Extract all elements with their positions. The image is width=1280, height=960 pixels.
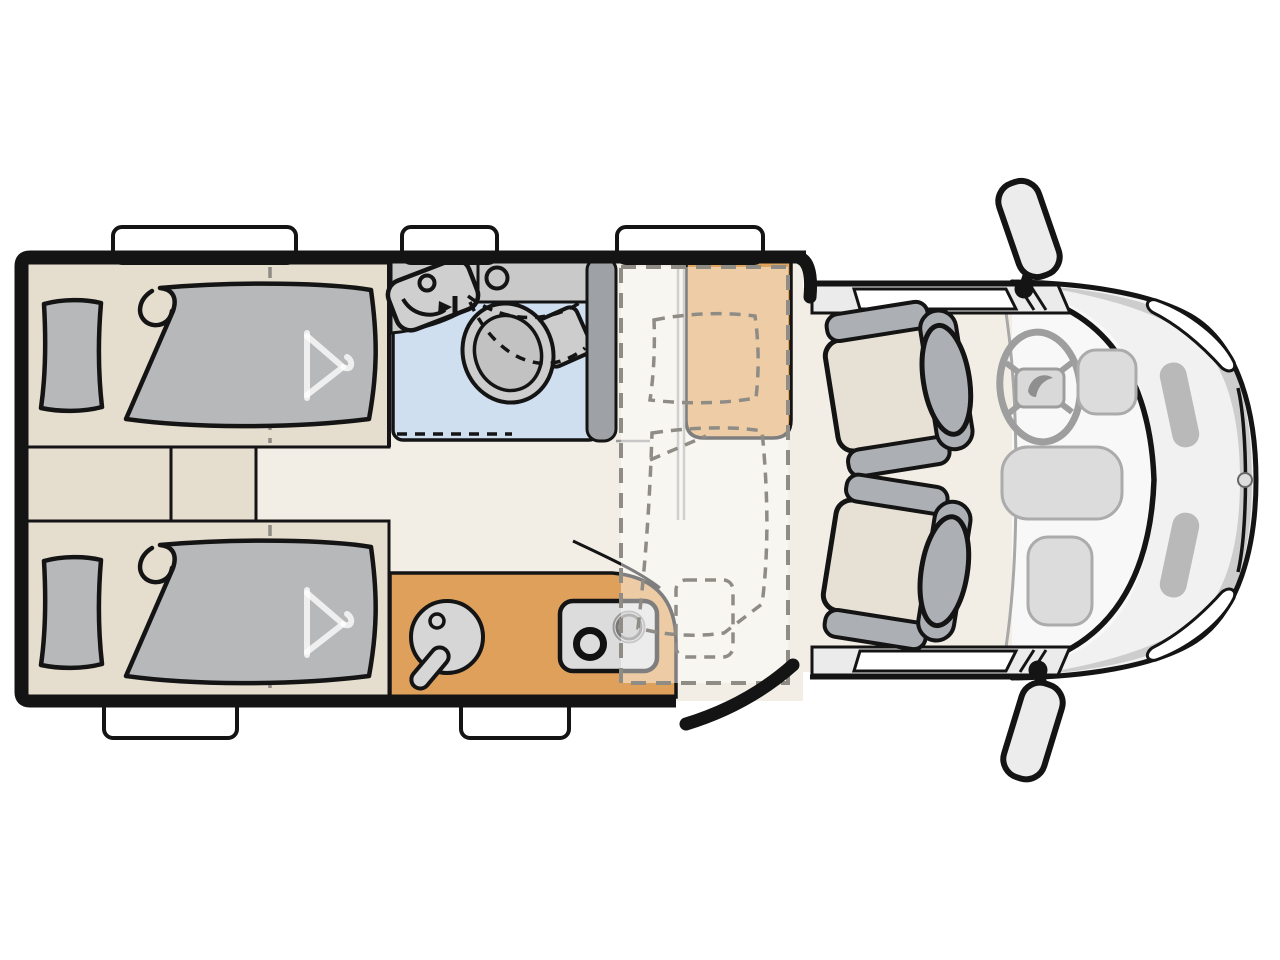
brand-emblem: [1238, 473, 1252, 487]
burner-left: [577, 631, 604, 658]
floorplan-svg: [0, 0, 1280, 960]
camper-floorplan-canvas: [0, 0, 1280, 960]
dashboard-cowl: [1078, 350, 1136, 414]
lower-console: [1028, 537, 1092, 625]
cab-side-window: [854, 651, 1016, 671]
center-console: [1002, 447, 1122, 519]
bathroom: [384, 255, 604, 447]
drop-down-bed-overlay: [621, 267, 788, 683]
bed-top: [41, 284, 376, 426]
wardrobe-column: [587, 258, 616, 441]
sink-drain: [430, 614, 444, 628]
center-step-cabinet: [27, 447, 256, 521]
bed-bottom: [41, 541, 376, 683]
